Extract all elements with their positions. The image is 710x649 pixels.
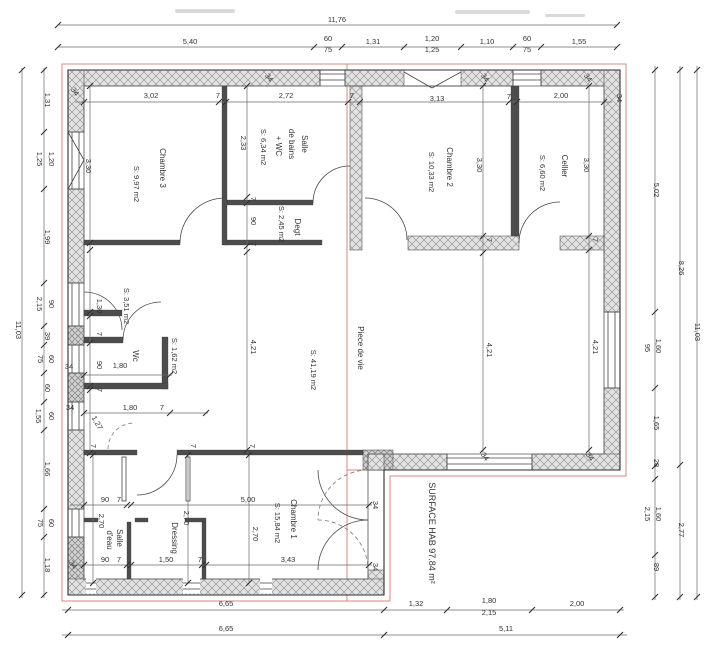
plan-label: de bains	[287, 129, 296, 159]
outer-wall-outline	[68, 70, 620, 595]
dim-label: 7	[95, 388, 104, 392]
dim-label: 89	[652, 563, 661, 571]
entry-door-symbol	[404, 72, 461, 88]
dim-label: 5,40	[183, 37, 198, 46]
dim-label: 75	[36, 355, 45, 363]
room-area-degt: S: 2,45 m2	[277, 206, 286, 242]
dim-label: 2,33	[239, 136, 248, 151]
door-arc-chambre-2	[365, 198, 407, 240]
room-area-salle-de-bains: S: 6,34 m2	[259, 129, 268, 165]
dim-label: 60	[523, 34, 531, 43]
dim-label: 2,77	[677, 523, 686, 538]
dim-label: 1,55	[572, 37, 587, 46]
dim-label: 1,20	[425, 34, 440, 43]
door-arc-cellier	[519, 202, 560, 243]
dim-label: 7	[507, 92, 511, 101]
exterior-walls	[68, 70, 620, 595]
dim-label: 1,30	[95, 299, 104, 314]
dim-label: 1,66	[43, 462, 52, 477]
room-area-chambre-3: S: 9,97 m2	[132, 166, 141, 202]
door-arc-degagement-nuit	[137, 455, 177, 495]
room-label-piece-de-vie: Piece de vie	[356, 326, 365, 370]
dim-label: 60	[47, 519, 56, 527]
dim-label: 7	[248, 444, 257, 448]
dim-label: 8,26	[677, 261, 686, 276]
room-label-degt: Degt	[293, 219, 302, 237]
plan-label: + WC	[274, 136, 283, 156]
dim-label: 34	[65, 362, 73, 371]
dim-label: 28	[652, 459, 661, 467]
room-area-couloir: S: 3,51 m2	[122, 288, 131, 324]
dim-label: 2,70	[251, 527, 260, 542]
room-label-dressing: Dressing	[170, 522, 179, 554]
dim-label: 34	[66, 403, 74, 412]
room-label-chambre-1: Chambre 1	[289, 499, 298, 539]
dim-label: 1,10	[480, 37, 495, 46]
dim-label: 1,31	[43, 93, 52, 108]
room-label-cellier: Cellier	[560, 155, 569, 178]
room-label-salle-de-bains: Salle	[300, 135, 309, 153]
dim-label: 75	[324, 45, 332, 54]
floor-plan-drawing: 11,765,4060751,311,201,251,1060751,553,0…	[0, 0, 710, 649]
dim-label: 90	[249, 217, 258, 225]
dim-label: 1,80	[113, 361, 128, 370]
door-arc-salle-de-bains	[313, 166, 350, 203]
dim-label: 60	[324, 34, 332, 43]
dim-label: 11,03	[14, 321, 23, 339]
dim-label: 1,65	[652, 416, 661, 431]
dim-label: 1,27	[90, 414, 105, 431]
french-door-arc-1	[318, 470, 368, 520]
dim-label: 6,65	[219, 624, 234, 633]
dim-label: 75	[523, 45, 531, 54]
dim-label: 60	[43, 384, 52, 392]
dim-label: 6,65	[219, 599, 234, 608]
dim-label: 34	[615, 94, 624, 102]
dim-label: 2,15	[643, 507, 652, 522]
room-label-salle-d-eau: Salle	[115, 529, 124, 547]
plan-label: d'eau	[105, 530, 114, 549]
dim-label: 90	[101, 495, 109, 504]
room-area-chambre-2: S: 10,33 m2	[427, 152, 436, 192]
dim-label: 1,32	[409, 599, 424, 608]
dim-label: 7	[198, 555, 202, 564]
dim-label: 7	[189, 444, 198, 448]
dim-label: 7	[350, 91, 354, 100]
dim-label: 7	[249, 197, 258, 201]
room-area-chambre-1: S: 15,84 m2	[273, 503, 282, 543]
dim-label: 5,00	[241, 495, 256, 504]
dim-label: 7	[160, 403, 164, 412]
windows	[68, 70, 620, 589]
dim-label: 34	[371, 563, 380, 571]
dim-label: 2,70	[182, 511, 191, 526]
dim-label: 1,31	[366, 37, 381, 46]
dim-label: 7	[89, 444, 98, 448]
dim-label: 1,60	[654, 339, 663, 354]
french-door-arc-2	[318, 520, 368, 570]
dim-label: 7	[216, 91, 220, 100]
dim-label: 1,20	[47, 152, 56, 167]
dim-label: 95	[643, 344, 652, 352]
dim-label: 90	[95, 361, 104, 369]
dim-label: 7	[117, 555, 121, 564]
dim-label: 3,02	[144, 91, 159, 100]
dim-label: 3,30	[84, 159, 93, 174]
dim-label: 1,80	[482, 596, 497, 605]
dim-label: 5,02	[652, 183, 661, 198]
dim-label: 1,80	[123, 403, 138, 412]
dim-label: 3,30	[475, 158, 484, 173]
dim-label: 2,15	[482, 608, 497, 617]
dim-label: 3,30	[582, 158, 591, 173]
open-door-leaf	[122, 457, 126, 501]
dim-label: 1,55	[34, 409, 43, 424]
floor-plan-canvas: 11,765,4060751,311,201,251,1060751,553,0…	[0, 0, 710, 649]
room-label-chambre-2: Chambre 2	[445, 147, 454, 187]
dim-label: 1,18	[43, 558, 52, 573]
dim-label: 4,21	[485, 343, 494, 358]
door-arc-chambre-3	[180, 198, 225, 243]
dim-label: 3,43	[281, 555, 296, 564]
dim-label: 34	[371, 501, 380, 509]
french-door-arc-dashed-2	[318, 520, 368, 570]
dim-label: 75	[36, 519, 45, 527]
dim-label: 1,25	[425, 45, 440, 54]
dim-label: 2,00	[554, 91, 569, 100]
dim-label: 90	[47, 300, 56, 308]
dim-label: 7	[485, 238, 494, 242]
dim-label: 7	[117, 495, 121, 504]
door-arcs	[84, 166, 560, 570]
room-label-wc: Wc	[131, 350, 140, 362]
dim-label: 11,03	[693, 323, 702, 341]
dim-label: 7	[249, 242, 258, 246]
dim-label: 3,13	[430, 94, 445, 103]
dim-label: 39	[43, 332, 52, 340]
surface-total-label: SURFACE HAB 97.84 m²	[427, 482, 437, 584]
dim-label: 2,72	[279, 91, 294, 100]
dim-label: 60	[47, 355, 56, 363]
dim-label: 2,00	[570, 599, 585, 608]
dim-label: 7	[95, 332, 104, 336]
dim-label: 7	[591, 238, 600, 242]
room-area-piece-de-vie: S: 41,19 m2	[309, 350, 318, 390]
hatch-arc-dashed	[108, 423, 134, 449]
room-label-chambre-3: Chambre 3	[158, 148, 167, 188]
scan-artifacts	[175, 9, 585, 17]
dim-label: 2,70	[97, 514, 106, 529]
dim-label: 4,21	[249, 340, 258, 355]
dim-label: 4,21	[591, 340, 600, 355]
dim-label: 1,60	[654, 507, 663, 522]
dim-label: 1,50	[159, 555, 174, 564]
dim-label: 2,15	[35, 297, 44, 312]
dim-label: 90	[101, 555, 109, 564]
room-area-wc: S: 1,62 m2	[170, 338, 179, 374]
dim-label: 5,11	[499, 624, 513, 633]
french-door-arc-dashed-1	[318, 470, 368, 520]
room-area-cellier: S: 6,60 m2	[538, 155, 547, 191]
dim-label: 11,76	[328, 15, 346, 24]
dim-label: 60	[47, 412, 56, 420]
dim-label: 1,25	[35, 152, 44, 167]
dim-label: 1,99	[43, 230, 52, 245]
